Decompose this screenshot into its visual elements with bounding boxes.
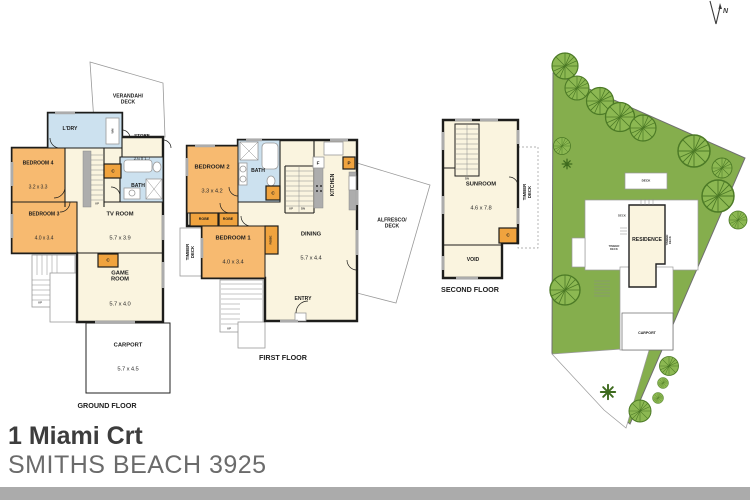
carport-label: CARPORT 5.7 x 4.5 <box>114 325 143 392</box>
bedroom1-label: BEDROOM 1 4.0 x 3.4 <box>215 218 250 285</box>
closet-label: C <box>111 168 114 173</box>
tree-icon <box>678 135 710 167</box>
pantry-label: P <box>347 160 350 165</box>
landing <box>50 273 77 322</box>
closet-label: C <box>271 190 274 195</box>
robe-label: ROBE <box>269 236 272 245</box>
stairwell <box>286 167 313 212</box>
tv-room-label: TV ROOM 5.7 x 3.9 <box>106 194 133 261</box>
tree-icon <box>550 275 580 305</box>
bedroom2-label: BEDROOM 2 3.3 x 4.2 <box>194 147 229 214</box>
alfresco-deck-area <box>357 163 430 303</box>
stair-rail <box>83 151 91 207</box>
dn-label: DN <box>301 207 305 210</box>
address-line1: 1 Miami Crt <box>8 422 143 451</box>
bathtub-icon <box>262 143 278 169</box>
void-label: VOID <box>467 258 479 264</box>
tree-icon <box>712 158 732 178</box>
basin-icon <box>240 176 246 182</box>
tree-icon <box>565 76 589 100</box>
carport-label: CARPORT <box>638 331 656 335</box>
basin-icon <box>240 166 246 172</box>
toilet-icon <box>267 176 275 186</box>
tree-icon <box>630 115 656 141</box>
tree-icon <box>653 393 664 404</box>
game-room-label: GAME ROOM 5.7 x 4.0 <box>109 252 130 325</box>
address-line2: SMITHS BEACH 3925 <box>8 451 267 480</box>
footer-bar: This plan is approximate and for illustr… <box>0 487 750 500</box>
kitchen-label: KITCHEN <box>331 174 337 197</box>
up-label: UP <box>289 207 293 210</box>
palm-icon <box>562 159 572 169</box>
floorplan-page: VERANDAH/ DECK L'DRY WM BEDROOM 4 3.2 x … <box>0 0 750 500</box>
sunroom-label: SUNROOM 4.6 x 7.8 <box>466 164 496 231</box>
palm-icon <box>601 385 615 399</box>
north-arrow-icon <box>710 1 722 24</box>
tree-icon <box>729 211 747 229</box>
timber-deck-label: TIMBER DECK <box>186 244 196 260</box>
deck-label: DECK <box>642 179 651 182</box>
sink-icon <box>349 176 356 190</box>
washing-machine-label: WM <box>111 129 114 134</box>
fridge-label: F <box>317 160 320 165</box>
north-label: N <box>723 8 728 15</box>
tree-icon <box>658 378 669 389</box>
tree-icon <box>660 357 679 376</box>
kitchen-counter <box>324 142 343 155</box>
first-floor-title: FIRST FLOOR <box>259 354 307 362</box>
timber-deck-label: TIMBER DECK <box>523 184 533 200</box>
alfresco-label: ALFRESCO/ DECK <box>377 218 406 229</box>
tree-icon <box>629 400 651 422</box>
up-label: UP <box>95 202 99 205</box>
laundry-label: L'DRY <box>63 127 78 133</box>
store-label: STORE 2.6 x 1.7 <box>134 115 151 179</box>
toilet-icon <box>153 162 161 172</box>
residence-label: RESIDENCE <box>632 238 662 244</box>
verandah-label: VERANDAH/ DECK <box>113 94 143 105</box>
bedroom3-label: BEDROOM 3 4.0 x 3.4 <box>29 194 60 259</box>
closet-label: C <box>106 257 109 262</box>
up-label: UP <box>227 327 231 330</box>
timber-deck-label: TIMBER DECK <box>666 235 672 246</box>
tree-icon <box>552 53 578 79</box>
dining-label: DINING 5.7 x 4.4 <box>300 214 321 281</box>
dn-label: DN <box>465 177 469 180</box>
landing <box>238 322 265 348</box>
robe-label: ROBE <box>199 217 209 221</box>
entry-label: ENTRY <box>294 297 311 303</box>
closet-label: C <box>506 232 509 237</box>
deck-label: DECK <box>618 214 626 217</box>
bath-label: BATH <box>251 169 265 175</box>
second-floor-title: SECOND FLOOR <box>441 286 499 294</box>
tree-icon <box>702 180 734 212</box>
tree-icon <box>554 138 571 155</box>
up-label: UP <box>38 301 42 304</box>
bath-label: BATH <box>131 184 145 190</box>
ground-floor-title: GROUND FLOOR <box>77 402 136 410</box>
site-porch-left <box>572 238 585 267</box>
timber-deck-label: TIMBER DECK <box>609 245 620 251</box>
